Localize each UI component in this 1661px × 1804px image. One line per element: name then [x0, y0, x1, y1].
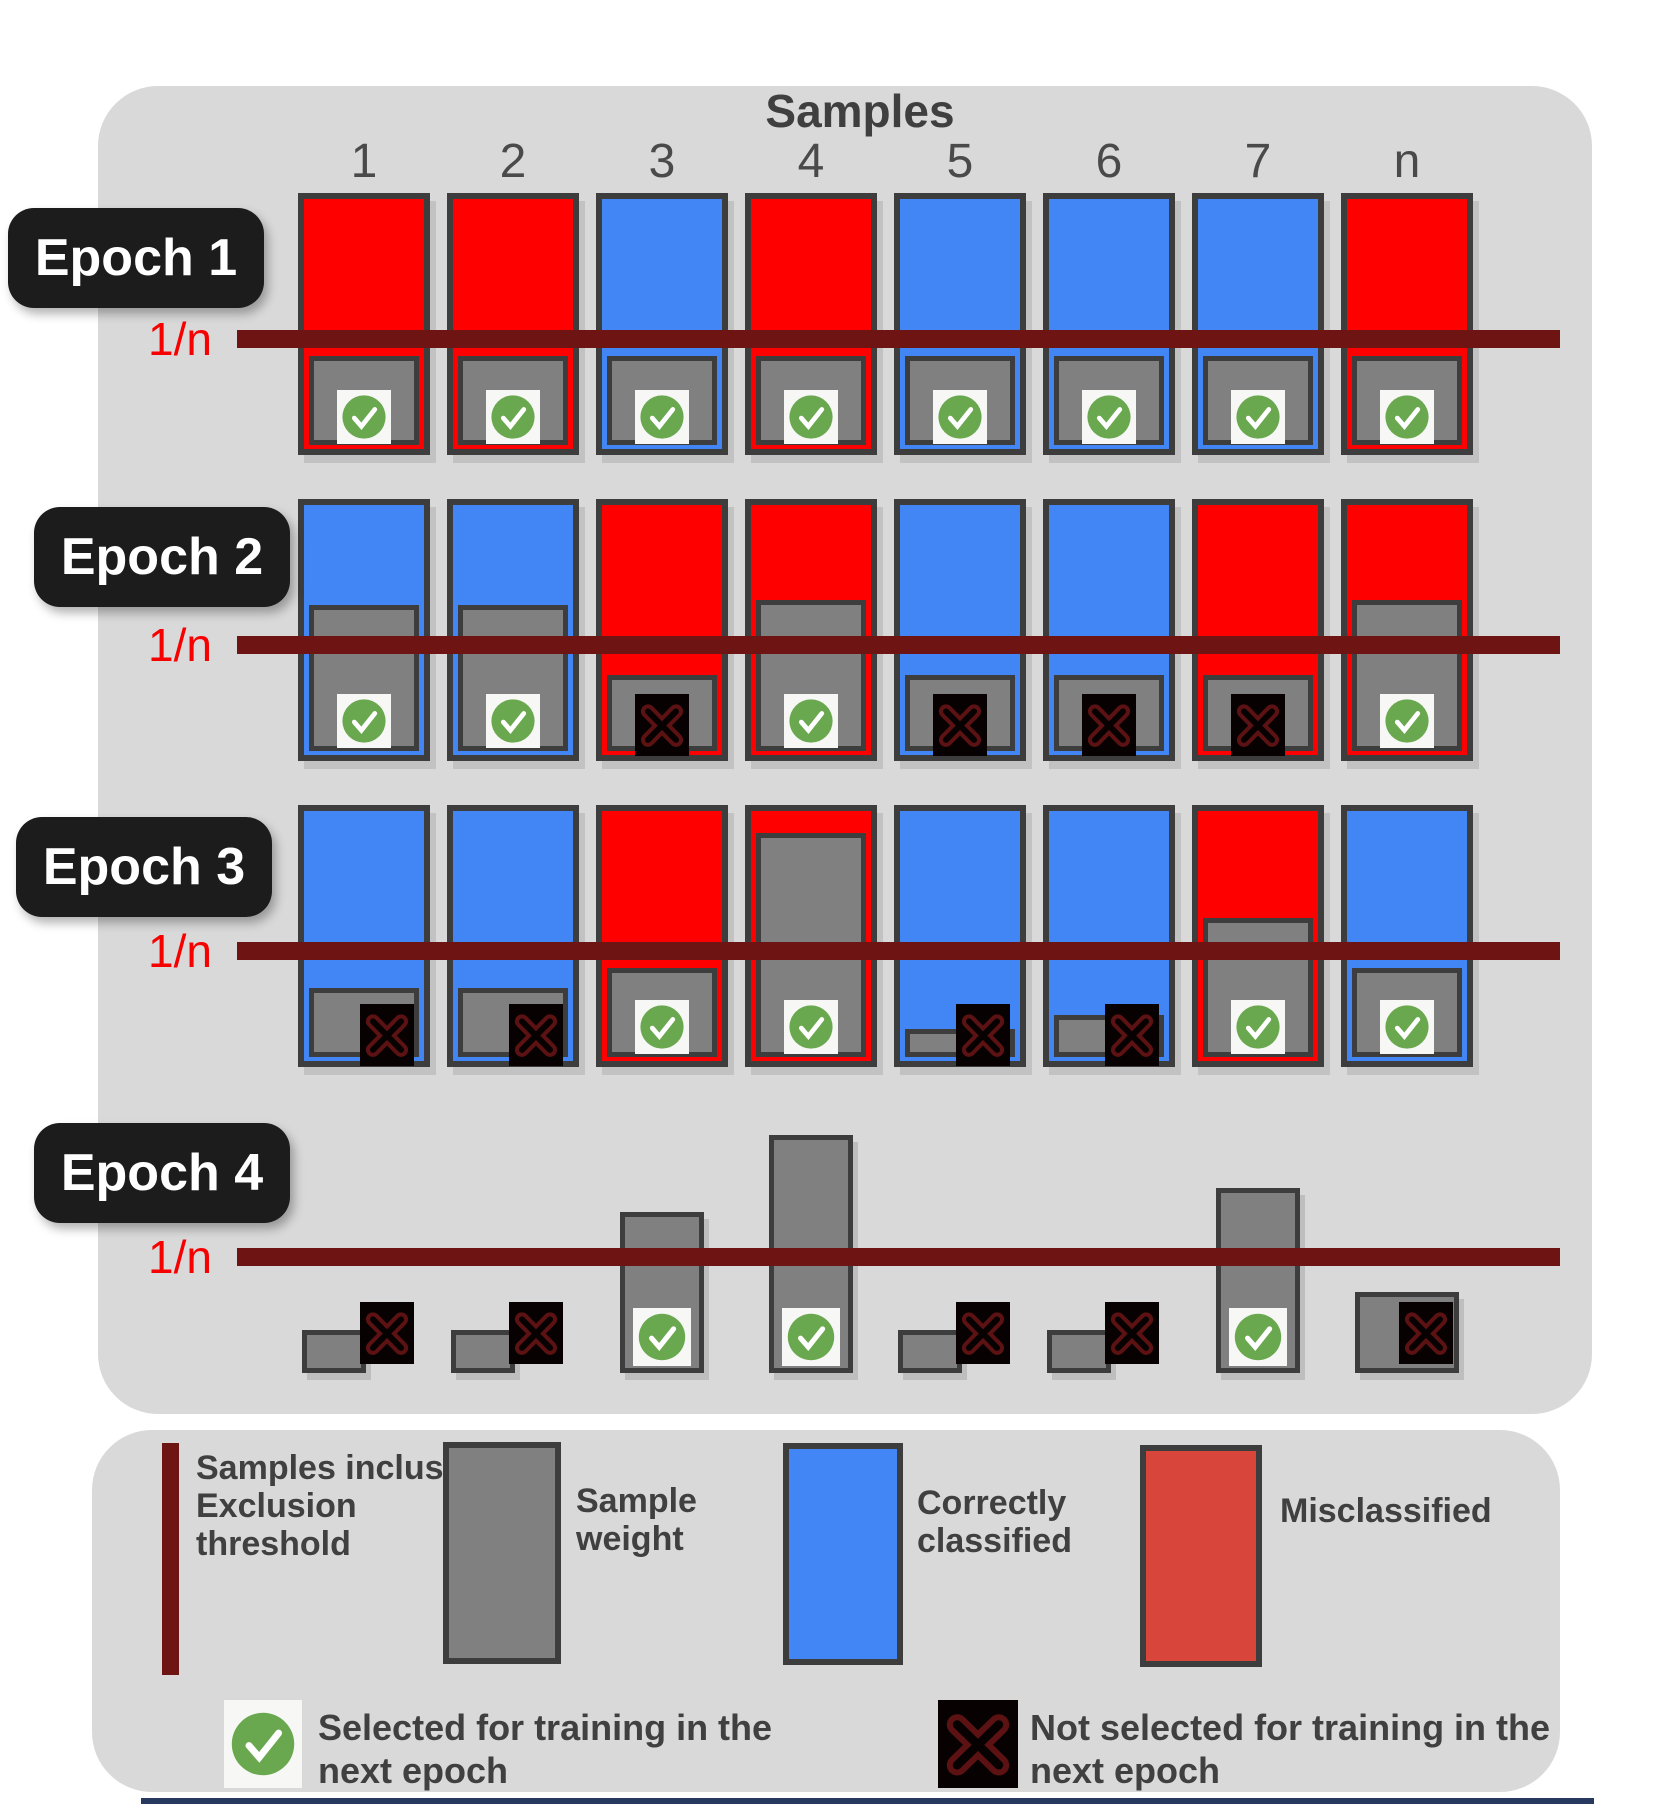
- legend-selected-label: Selected for training in the next epoch: [318, 1706, 772, 1792]
- x-icon: [1105, 1302, 1159, 1364]
- epoch-label-2: Epoch 2: [34, 507, 290, 607]
- check-icon: [1082, 390, 1136, 444]
- x-icon: [933, 694, 987, 756]
- legend-weight-label: Sample weight: [576, 1482, 697, 1558]
- check-icon: [784, 390, 838, 444]
- bottom-edge-strip: [141, 1798, 1594, 1804]
- check-icon: [1380, 1000, 1434, 1054]
- diagram-canvas: Samples 1234567n Epoch 11/n Epoch 21/n: [0, 0, 1661, 1804]
- check-icon: [784, 694, 838, 748]
- check-icon: [933, 390, 987, 444]
- x-icon: [635, 694, 689, 756]
- selected-check-5: [933, 390, 987, 444]
- selected-check-4: [784, 390, 838, 444]
- legend-weight-swatch: [443, 1442, 561, 1664]
- check-icon: [784, 1000, 838, 1054]
- epoch-label-1: Epoch 1: [8, 208, 264, 308]
- selected-check-2: [486, 694, 540, 748]
- x-icon: [956, 1004, 1010, 1066]
- not-selected-x-3: [635, 694, 689, 756]
- x-icon: [360, 1302, 414, 1364]
- threshold-label-epoch-1: 1/n: [148, 312, 212, 366]
- threshold-line-epoch-1: [237, 330, 1560, 348]
- x-icon: [1231, 694, 1285, 756]
- selected-check-4: [782, 1308, 840, 1366]
- epoch-label-4: Epoch 4: [34, 1123, 290, 1223]
- selected-check-2: [486, 390, 540, 444]
- x-icon: [360, 1004, 414, 1066]
- check-icon: [337, 694, 391, 748]
- selected-check-7: [1231, 390, 1285, 444]
- selected-check-n: [1380, 1000, 1434, 1054]
- sample-column-number-1: 1: [351, 134, 378, 189]
- legend-correct-swatch: [783, 1443, 903, 1665]
- not-selected-x-7: [1231, 694, 1285, 756]
- not-selected-x-2: [509, 1004, 563, 1066]
- selected-check-1: [337, 390, 391, 444]
- samples-title: Samples: [765, 84, 954, 138]
- weight-bar-1: [302, 1330, 366, 1373]
- selected-check-4: [784, 694, 838, 748]
- weight-bar-5: [898, 1330, 962, 1373]
- selected-check-3: [635, 1000, 689, 1054]
- legend-misclassified-label: Misclassified: [1280, 1492, 1492, 1530]
- sample-column-number-4: 4: [798, 134, 825, 189]
- check-icon: [486, 694, 540, 748]
- not-selected-x-n: [1399, 1302, 1453, 1364]
- check-icon: [1231, 1000, 1285, 1054]
- legend-not-selected-label: Not selected for training in the next ep…: [1030, 1706, 1550, 1792]
- legend-misclassified-swatch: [1140, 1445, 1262, 1667]
- selected-check-3: [635, 390, 689, 444]
- not-selected-x-2: [509, 1302, 563, 1364]
- selected-check-3: [633, 1308, 691, 1366]
- sample-column-number-2: 2: [500, 134, 527, 189]
- threshold-line-epoch-2: [237, 636, 1560, 654]
- x-icon: [956, 1302, 1010, 1364]
- sample-column-number-6: 6: [1096, 134, 1123, 189]
- x-icon: [938, 1700, 1018, 1788]
- threshold-line-epoch-3: [237, 942, 1560, 960]
- threshold-label-epoch-3: 1/n: [148, 924, 212, 978]
- selected-check-n: [1380, 390, 1434, 444]
- check-icon: [337, 390, 391, 444]
- not-selected-x-1: [360, 1004, 414, 1066]
- sample-column-number-3: 3: [649, 134, 676, 189]
- not-selected-x-6: [1082, 694, 1136, 756]
- threshold-label-epoch-4: 1/n: [148, 1230, 212, 1284]
- check-icon: [224, 1700, 302, 1788]
- not-selected-x-5: [956, 1004, 1010, 1066]
- check-icon: [1229, 1308, 1287, 1366]
- selected-check-6: [1082, 390, 1136, 444]
- not-selected-x-5: [933, 694, 987, 756]
- check-icon: [635, 1000, 689, 1054]
- sample-column-number-n: n: [1394, 134, 1421, 189]
- selected-check-7: [1229, 1308, 1287, 1366]
- not-selected-x-5: [956, 1302, 1010, 1364]
- legend-threshold-label: Samples inclus Exclusion threshold: [196, 1449, 456, 1563]
- check-icon: [1380, 390, 1434, 444]
- not-selected-x-1: [360, 1302, 414, 1364]
- selected-check-7: [1231, 1000, 1285, 1054]
- legend-x-icon: [938, 1700, 1018, 1788]
- check-icon: [1231, 390, 1285, 444]
- sample-column-number-5: 5: [947, 134, 974, 189]
- check-icon: [1380, 694, 1434, 748]
- legend-threshold-bar: [162, 1443, 179, 1675]
- weight-bar-6: [1047, 1330, 1111, 1373]
- x-icon: [1105, 1004, 1159, 1066]
- x-icon: [1399, 1302, 1453, 1364]
- selected-check-4: [784, 1000, 838, 1054]
- legend-correct-label: Correctly classified: [917, 1484, 1072, 1560]
- selected-check-n: [1380, 694, 1434, 748]
- legend-check-icon: [224, 1700, 302, 1788]
- not-selected-x-6: [1105, 1004, 1159, 1066]
- check-icon: [486, 390, 540, 444]
- x-icon: [1082, 694, 1136, 756]
- weight-bar-2: [451, 1330, 515, 1373]
- check-icon: [782, 1308, 840, 1366]
- not-selected-x-6: [1105, 1302, 1159, 1364]
- threshold-line-epoch-4: [237, 1248, 1560, 1266]
- threshold-label-epoch-2: 1/n: [148, 618, 212, 672]
- epoch-label-3: Epoch 3: [16, 817, 272, 917]
- sample-column-number-7: 7: [1245, 134, 1272, 189]
- check-icon: [635, 390, 689, 444]
- check-icon: [633, 1308, 691, 1366]
- selected-check-1: [337, 694, 391, 748]
- x-icon: [509, 1302, 563, 1364]
- x-icon: [509, 1004, 563, 1066]
